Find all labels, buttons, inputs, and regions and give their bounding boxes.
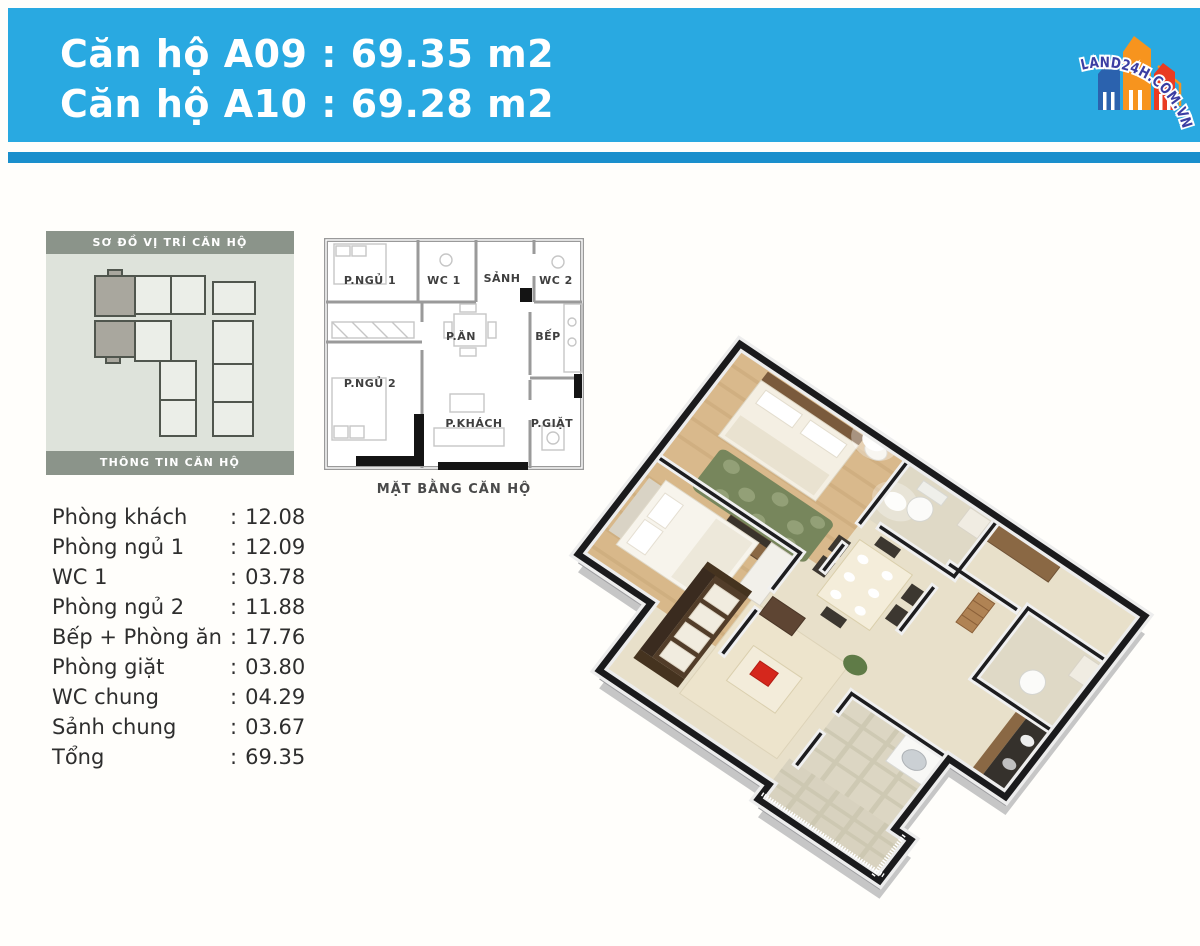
- unit: [171, 276, 205, 314]
- unit: [135, 276, 171, 314]
- unit: [213, 402, 253, 436]
- unit-a10-notch: [106, 357, 120, 363]
- row-value: :12.08: [230, 502, 305, 532]
- table-row: Tổng:69.35: [52, 742, 320, 772]
- row-value: :04.29: [230, 682, 305, 712]
- row-label: Bếp + Phòng ăn: [52, 622, 222, 652]
- area-table: Phòng khách:12.08 Phòng ngủ 1:12.09 WC 1…: [52, 502, 320, 772]
- row-value: :03.80: [230, 652, 305, 682]
- unit: [160, 361, 196, 400]
- room-label-sanh: SẢNH: [484, 271, 521, 285]
- floorplan-3d-render: [495, 330, 1155, 930]
- brochure-page: Căn hộ A09 : 69.35 m2 Căn hộ A10 : 69.28…: [0, 0, 1200, 946]
- row-value: :69.35: [230, 742, 305, 772]
- header-underline-bar: [8, 152, 1200, 163]
- unit-a09-notch: [108, 270, 122, 276]
- room-label-wc1: WC 1: [427, 274, 461, 287]
- row-label: Phòng khách: [52, 502, 187, 532]
- apartment-a10-title: Căn hộ A10 : 69.28 m2: [60, 82, 554, 126]
- table-row: Sảnh chung:03.67: [52, 712, 320, 742]
- table-row: Phòng giặt:03.80: [52, 652, 320, 682]
- room-label-pngu2: P.NGỦ 2: [344, 376, 396, 390]
- row-value: :12.09: [230, 532, 305, 562]
- apartment-a09-title: Căn hộ A09 : 69.35 m2: [60, 32, 554, 76]
- row-label: Phòng ngủ 1: [52, 532, 184, 562]
- location-panel-title: SƠ ĐỒ VỊ TRÍ CĂN HỘ: [46, 231, 294, 254]
- table-row: Phòng khách:12.08: [52, 502, 320, 532]
- building-units-diagram: [46, 254, 294, 451]
- unit-a10-highlighted: [95, 321, 135, 357]
- row-value: :17.76: [230, 622, 305, 652]
- table-row: Phòng ngủ 2:11.88: [52, 592, 320, 622]
- row-label: WC chung: [52, 682, 159, 712]
- header-band: Căn hộ A09 : 69.35 m2 Căn hộ A10 : 69.28…: [8, 8, 1200, 142]
- row-value: :11.88: [230, 592, 305, 622]
- table-row: Bếp + Phòng ăn:17.76: [52, 622, 320, 652]
- row-value: :03.78: [230, 562, 305, 592]
- table-row: Phòng ngủ 1:12.09: [52, 532, 320, 562]
- room-label-pan: P.ĂN: [446, 330, 476, 343]
- table-row: WC 1:03.78: [52, 562, 320, 592]
- land24h-logo: LAND24H.COM.VN: [1062, 10, 1198, 142]
- unit: [213, 321, 253, 364]
- row-label: WC 1: [52, 562, 107, 592]
- row-label: Phòng giặt: [52, 652, 164, 682]
- table-row: WC chung:04.29: [52, 682, 320, 712]
- row-label: Sảnh chung: [52, 712, 176, 742]
- row-label: Phòng ngủ 2: [52, 592, 184, 622]
- unit: [160, 400, 196, 436]
- unit: [213, 364, 253, 402]
- unit: [213, 282, 255, 314]
- room-label-pngu1: P.NGỦ 1: [344, 273, 396, 287]
- row-value: :03.67: [230, 712, 305, 742]
- room-label-wc2: WC 2: [539, 274, 573, 287]
- unit-a09-highlighted: [95, 276, 135, 316]
- unit: [135, 321, 171, 361]
- row-label: Tổng: [52, 742, 104, 772]
- location-panel-footer: THÔNG TIN CĂN HỘ: [46, 451, 294, 475]
- location-diagram-panel: SƠ ĐỒ VỊ TRÍ CĂN HỘ THÔNG TIN CĂN HỘ: [46, 231, 294, 475]
